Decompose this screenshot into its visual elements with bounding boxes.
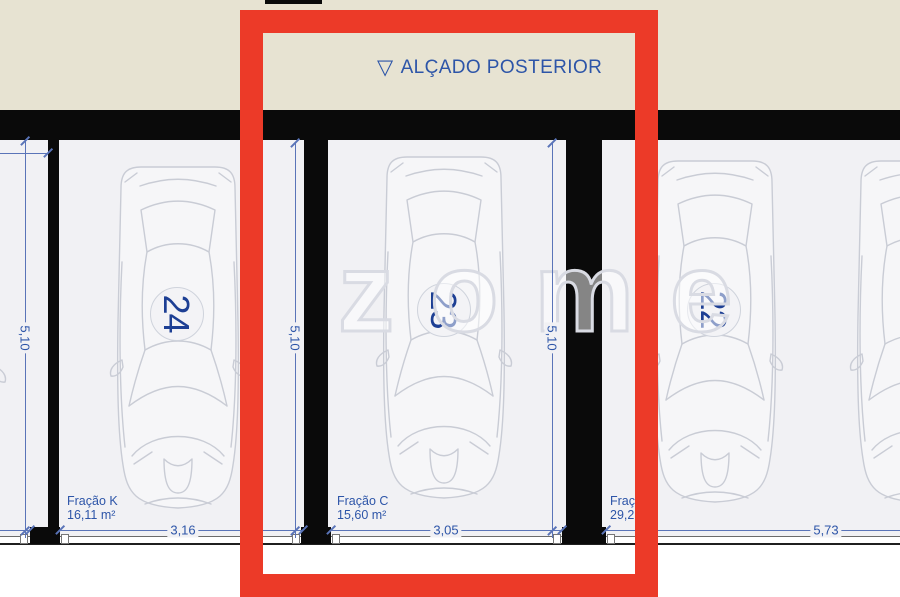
dim-width-22-label: 5,73	[810, 523, 841, 538]
car-top-view-partial-left	[0, 168, 8, 516]
floor-plan: ▽ALÇADO POSTERIOR 24 23 22 zome	[0, 0, 900, 597]
pillar-left-foot	[30, 527, 60, 544]
red-highlight-frame	[240, 10, 658, 597]
space-number-badge-24: 24	[150, 287, 204, 341]
fraction-name-24: Fração K	[67, 494, 118, 508]
dim-depth-left-label: 5,10	[18, 322, 33, 353]
car-top-view-partial-right	[848, 156, 900, 504]
dim-width-24-label: 3,16	[167, 523, 198, 538]
dim-line-topleft	[0, 153, 48, 154]
fraction-label-24: Fração K 16,11 m²	[67, 495, 118, 522]
pillar-left	[48, 140, 59, 528]
space-number-24: 24	[151, 288, 202, 339]
top-wall-sliver	[265, 0, 322, 4]
door-jamb	[61, 534, 69, 544]
fraction-area-24: 16,11 m²	[67, 509, 118, 523]
